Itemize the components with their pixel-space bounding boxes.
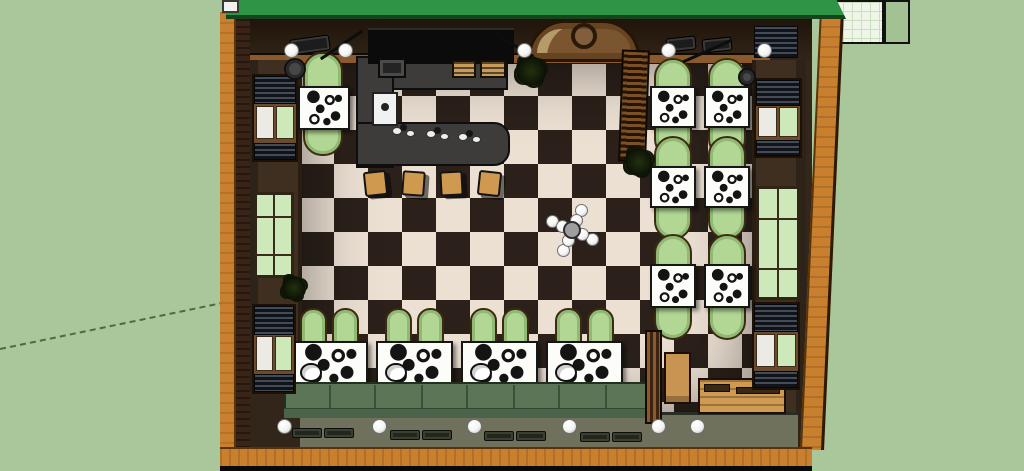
wall-light-top	[284, 43, 299, 58]
ledge-window-frame	[324, 428, 354, 438]
wall-light-top	[757, 43, 772, 58]
wall-light-top	[517, 43, 532, 58]
dining-table	[704, 86, 750, 128]
window-blinds	[254, 374, 294, 392]
chandelier-hub	[563, 221, 581, 239]
ledge-window-frame	[580, 432, 610, 442]
plant-pot	[284, 58, 306, 80]
bar-stool	[401, 170, 426, 197]
wall-light-bottom	[690, 419, 705, 434]
bench-seam	[605, 385, 607, 409]
potted-plant	[282, 276, 306, 300]
dining-table	[298, 86, 350, 130]
wall-light-bottom	[651, 419, 666, 434]
wood-crate	[664, 352, 691, 404]
ledge-window-frame	[612, 432, 642, 442]
awning-roof	[226, 0, 846, 19]
brick-wall-left	[236, 12, 250, 447]
ledge-window-frame	[292, 428, 322, 438]
bench-seam	[421, 385, 423, 409]
bar-saucer	[406, 130, 415, 137]
ledge-window-frame	[484, 431, 514, 441]
booth-table	[461, 341, 538, 387]
window-mullion	[257, 254, 291, 256]
wall-light-bottom	[562, 419, 577, 434]
window-blinds	[254, 76, 296, 104]
3d-viewport[interactable]	[0, 0, 1024, 471]
bar-stool	[477, 170, 502, 197]
bench-seam	[466, 385, 468, 409]
wall-light-top	[661, 43, 676, 58]
bar-front-counter	[356, 122, 510, 166]
potted-plant	[516, 56, 546, 86]
bar-cup	[434, 127, 441, 134]
bench-seam	[329, 385, 331, 409]
wall-light-bottom	[277, 419, 292, 434]
window-blinds	[756, 140, 800, 156]
window-mullion	[273, 195, 275, 275]
table-item	[704, 384, 730, 392]
window-mullion	[759, 268, 797, 270]
booth-table	[376, 341, 453, 387]
bar-hood	[378, 58, 406, 78]
rooftop-unit	[222, 0, 239, 13]
bar-sink	[372, 92, 398, 126]
window-mullion	[777, 189, 779, 297]
bar-saucer	[440, 133, 449, 140]
window-mullion	[759, 218, 797, 220]
window-pane	[275, 336, 292, 370]
furniture-layer	[0, 0, 1024, 471]
booth-table	[546, 341, 623, 387]
bench-seam	[513, 385, 515, 409]
outer-wall-left	[220, 12, 236, 467]
wall-light-top	[338, 43, 353, 58]
door-round-window	[571, 23, 597, 49]
bar-stool	[439, 170, 463, 196]
booth-table	[291, 341, 368, 387]
window-pane	[758, 107, 777, 137]
dining-table	[704, 264, 750, 308]
bar-shelf	[480, 60, 506, 78]
window-pane	[756, 334, 775, 367]
plant-pot	[738, 68, 756, 86]
window-pane	[779, 107, 798, 137]
dining-table	[650, 166, 696, 208]
ledge-window-frame	[390, 430, 420, 440]
dining-table	[704, 166, 750, 208]
bench-seam	[374, 385, 376, 409]
window-blinds	[754, 371, 798, 389]
wood-partition	[645, 330, 662, 424]
window-pane	[256, 106, 274, 139]
bar-shelf	[452, 60, 476, 78]
window-pane	[777, 334, 796, 367]
window-mullion	[257, 216, 291, 218]
wall-light-bottom	[467, 419, 482, 434]
ledge-window-frame	[422, 430, 452, 440]
potted-plant	[625, 148, 653, 176]
bar-saucer	[472, 136, 481, 143]
window-blinds	[254, 143, 296, 161]
bar-stool	[363, 170, 388, 197]
bench-front-edge	[284, 408, 658, 418]
wall-light-bottom	[372, 419, 387, 434]
dining-table	[650, 264, 696, 308]
bar-cup	[400, 124, 407, 131]
slatted-bench	[618, 50, 650, 163]
dining-table	[650, 86, 696, 128]
window-pane	[256, 336, 273, 370]
window-blinds	[254, 306, 294, 335]
outer-wall-bottom	[220, 447, 812, 467]
window-blinds	[754, 304, 798, 332]
ledge-window-frame	[516, 431, 546, 441]
bench-seam	[558, 385, 560, 409]
window-pane	[276, 106, 294, 139]
bar-cup	[466, 130, 473, 137]
window-blinds	[756, 80, 800, 106]
bottom-shadow-edge	[220, 466, 812, 471]
